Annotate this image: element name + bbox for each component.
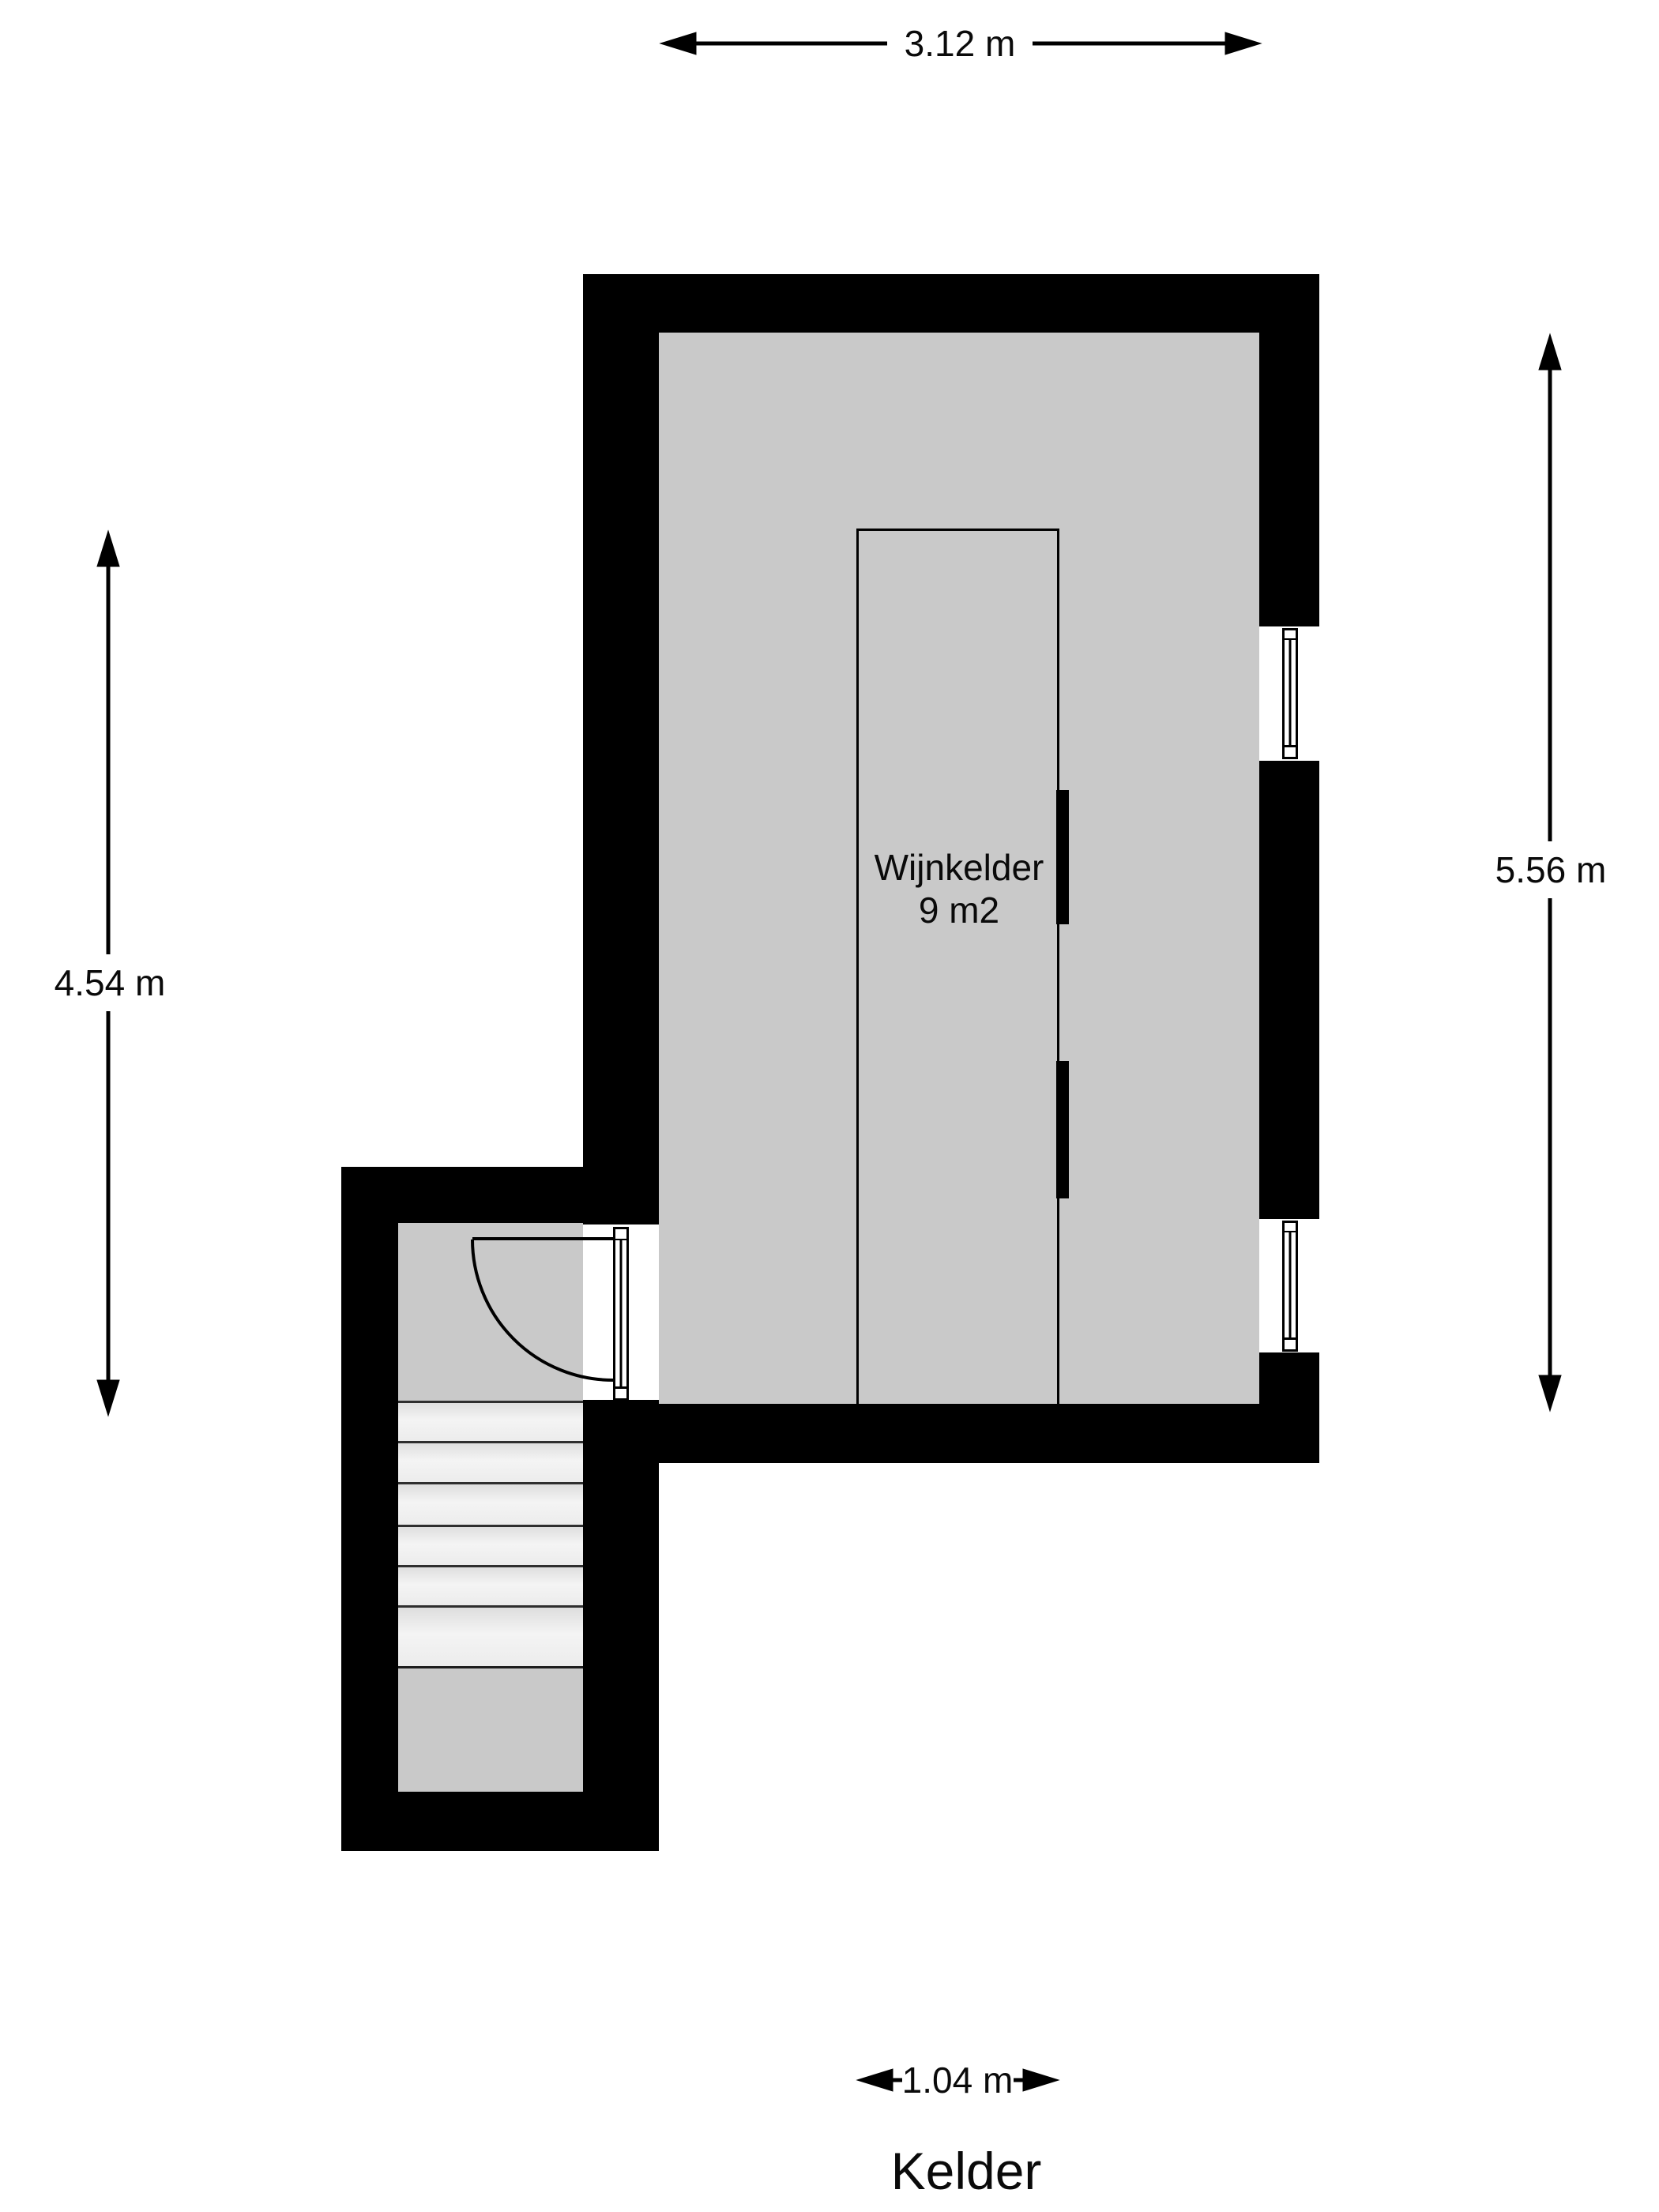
room-name: Wijnkelder (875, 846, 1044, 889)
stair-tread (398, 1565, 583, 1605)
wall-extension-left (341, 1167, 398, 1851)
door-leaf (472, 1237, 613, 1240)
stair-landing (398, 1666, 583, 1792)
window-upper-jamb-bottom (1282, 745, 1298, 759)
window-lower-glazing (1282, 1232, 1298, 1338)
closet-wall-segment-upper (1056, 790, 1069, 924)
dimension-label-closet-width: 1.04 m (896, 2060, 1020, 2100)
arrow-up-icon (1539, 334, 1561, 370)
dimension-label-top: 3.12 m (898, 24, 1022, 63)
wall-main-bottom (659, 1404, 1319, 1463)
window-lower-jamb-bottom (1282, 1337, 1298, 1352)
door-jamb-bottom (613, 1386, 629, 1401)
door-jamb-top (613, 1227, 629, 1241)
window-upper-jamb-top (1282, 628, 1298, 641)
stair-tread (398, 1605, 583, 1666)
room-label: Wijnkelder 9 m2 (875, 846, 1044, 931)
dimension-label-left: 4.54 m (48, 963, 172, 1003)
floorplan-canvas: 3.12 m 4.54 m 5.56 m 1.04 m Wijnkelder 9… (0, 0, 1659, 2212)
wall-main-right-upper (1259, 274, 1319, 626)
window-lower-jamb-top (1282, 1221, 1298, 1233)
arrow-left-icon (660, 32, 696, 55)
stair-tread (398, 1482, 583, 1525)
wall-main-right-middle (1259, 761, 1319, 1219)
arrow-left-icon (857, 2069, 893, 2091)
window-lower-glass-line (1289, 1232, 1292, 1338)
arrow-right-icon (1023, 2069, 1059, 2091)
hallway-floor (398, 1223, 583, 1401)
plan-title: Kelder (891, 2145, 1042, 2197)
window-upper-glass-line (1289, 640, 1292, 746)
wall-main-top (583, 274, 1319, 333)
arrow-up-icon (97, 531, 119, 566)
stair-tread (398, 1401, 583, 1441)
door-panel-line (620, 1240, 623, 1387)
room-area: 9 m2 (875, 889, 1044, 931)
window-upper-glazing (1282, 640, 1298, 746)
wall-main-left-lower (583, 1400, 659, 1851)
wine-cellar-closet (856, 529, 1059, 1404)
arrow-right-icon (1225, 32, 1261, 55)
staircase (398, 1401, 583, 1666)
stair-tread (398, 1525, 583, 1565)
stair-tread (398, 1441, 583, 1482)
arrow-down-icon (97, 1380, 119, 1416)
wall-extension-bottom (341, 1792, 658, 1851)
closet-wall-segment-lower (1056, 1061, 1069, 1198)
wall-main-left-upper (583, 274, 659, 1224)
arrow-down-icon (1539, 1375, 1561, 1411)
door-panel (613, 1240, 629, 1387)
dimension-label-right: 5.56 m (1489, 850, 1613, 890)
